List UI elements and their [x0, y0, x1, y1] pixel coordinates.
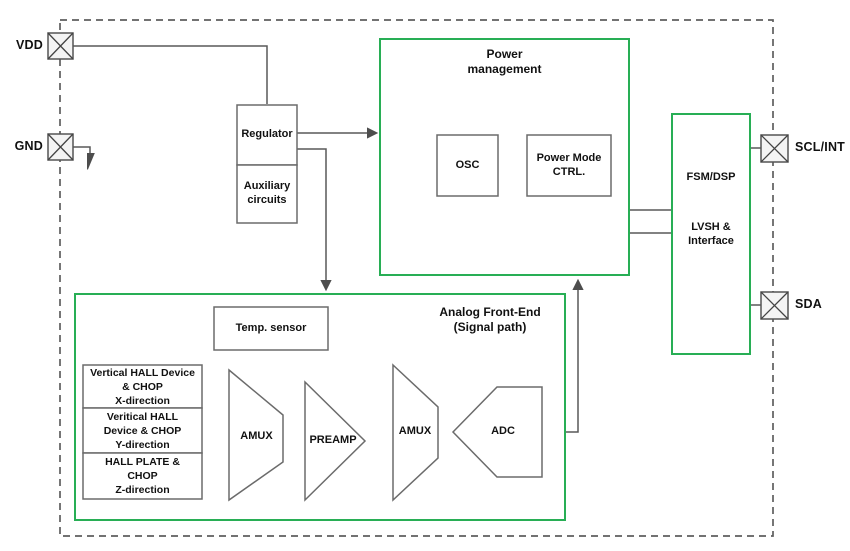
wire-vdd-to-regulator [73, 46, 267, 104]
regulator-label: Regulator [237, 105, 297, 165]
power-management-title: Power management [380, 47, 629, 87]
scl-int-pin-icon [761, 135, 788, 162]
hall-y-label: Veritical HALL Device & CHOP Y-direction [83, 408, 202, 453]
osc-label: OSC [437, 135, 498, 196]
block-diagram: VDD GND SCL/INT SDA Regulator Auxiliary … [0, 0, 850, 551]
gnd-pin-icon [48, 134, 73, 160]
auxiliary-circuits-label: Auxiliary circuits [237, 165, 297, 223]
wire-gnd-ground [73, 147, 90, 161]
hall-z-label: HALL PLATE & CHOP Z-direction [83, 453, 202, 499]
lvsh-interface-label: LVSH & Interface [672, 219, 750, 251]
preamp-label: PREAMP [303, 430, 363, 452]
amux1-label: AMUX [230, 425, 283, 449]
gnd-pin-label: GND [8, 139, 43, 155]
afe-title: Analog Front-End (Signal path) [385, 305, 595, 345]
power-mode-ctrl-label: Power Mode CTRL. [527, 135, 611, 196]
scl-int-pin-label: SCL/INT [795, 140, 850, 156]
fsm-dsp-label: FSM/DSP [672, 170, 750, 186]
vdd-pin-icon [48, 33, 73, 59]
adc-label: ADC [475, 420, 531, 444]
vdd-pin-label: VDD [8, 38, 43, 54]
sda-pin-label: SDA [795, 297, 840, 313]
amux2-label: AMUX [391, 420, 439, 444]
temp-sensor-label: Temp. sensor [214, 307, 328, 350]
hall-x-label: Vertical HALL Device & CHOP X-direction [83, 365, 202, 408]
sda-pin-icon [761, 292, 788, 319]
wire-regulator-to-afe [297, 149, 326, 289]
